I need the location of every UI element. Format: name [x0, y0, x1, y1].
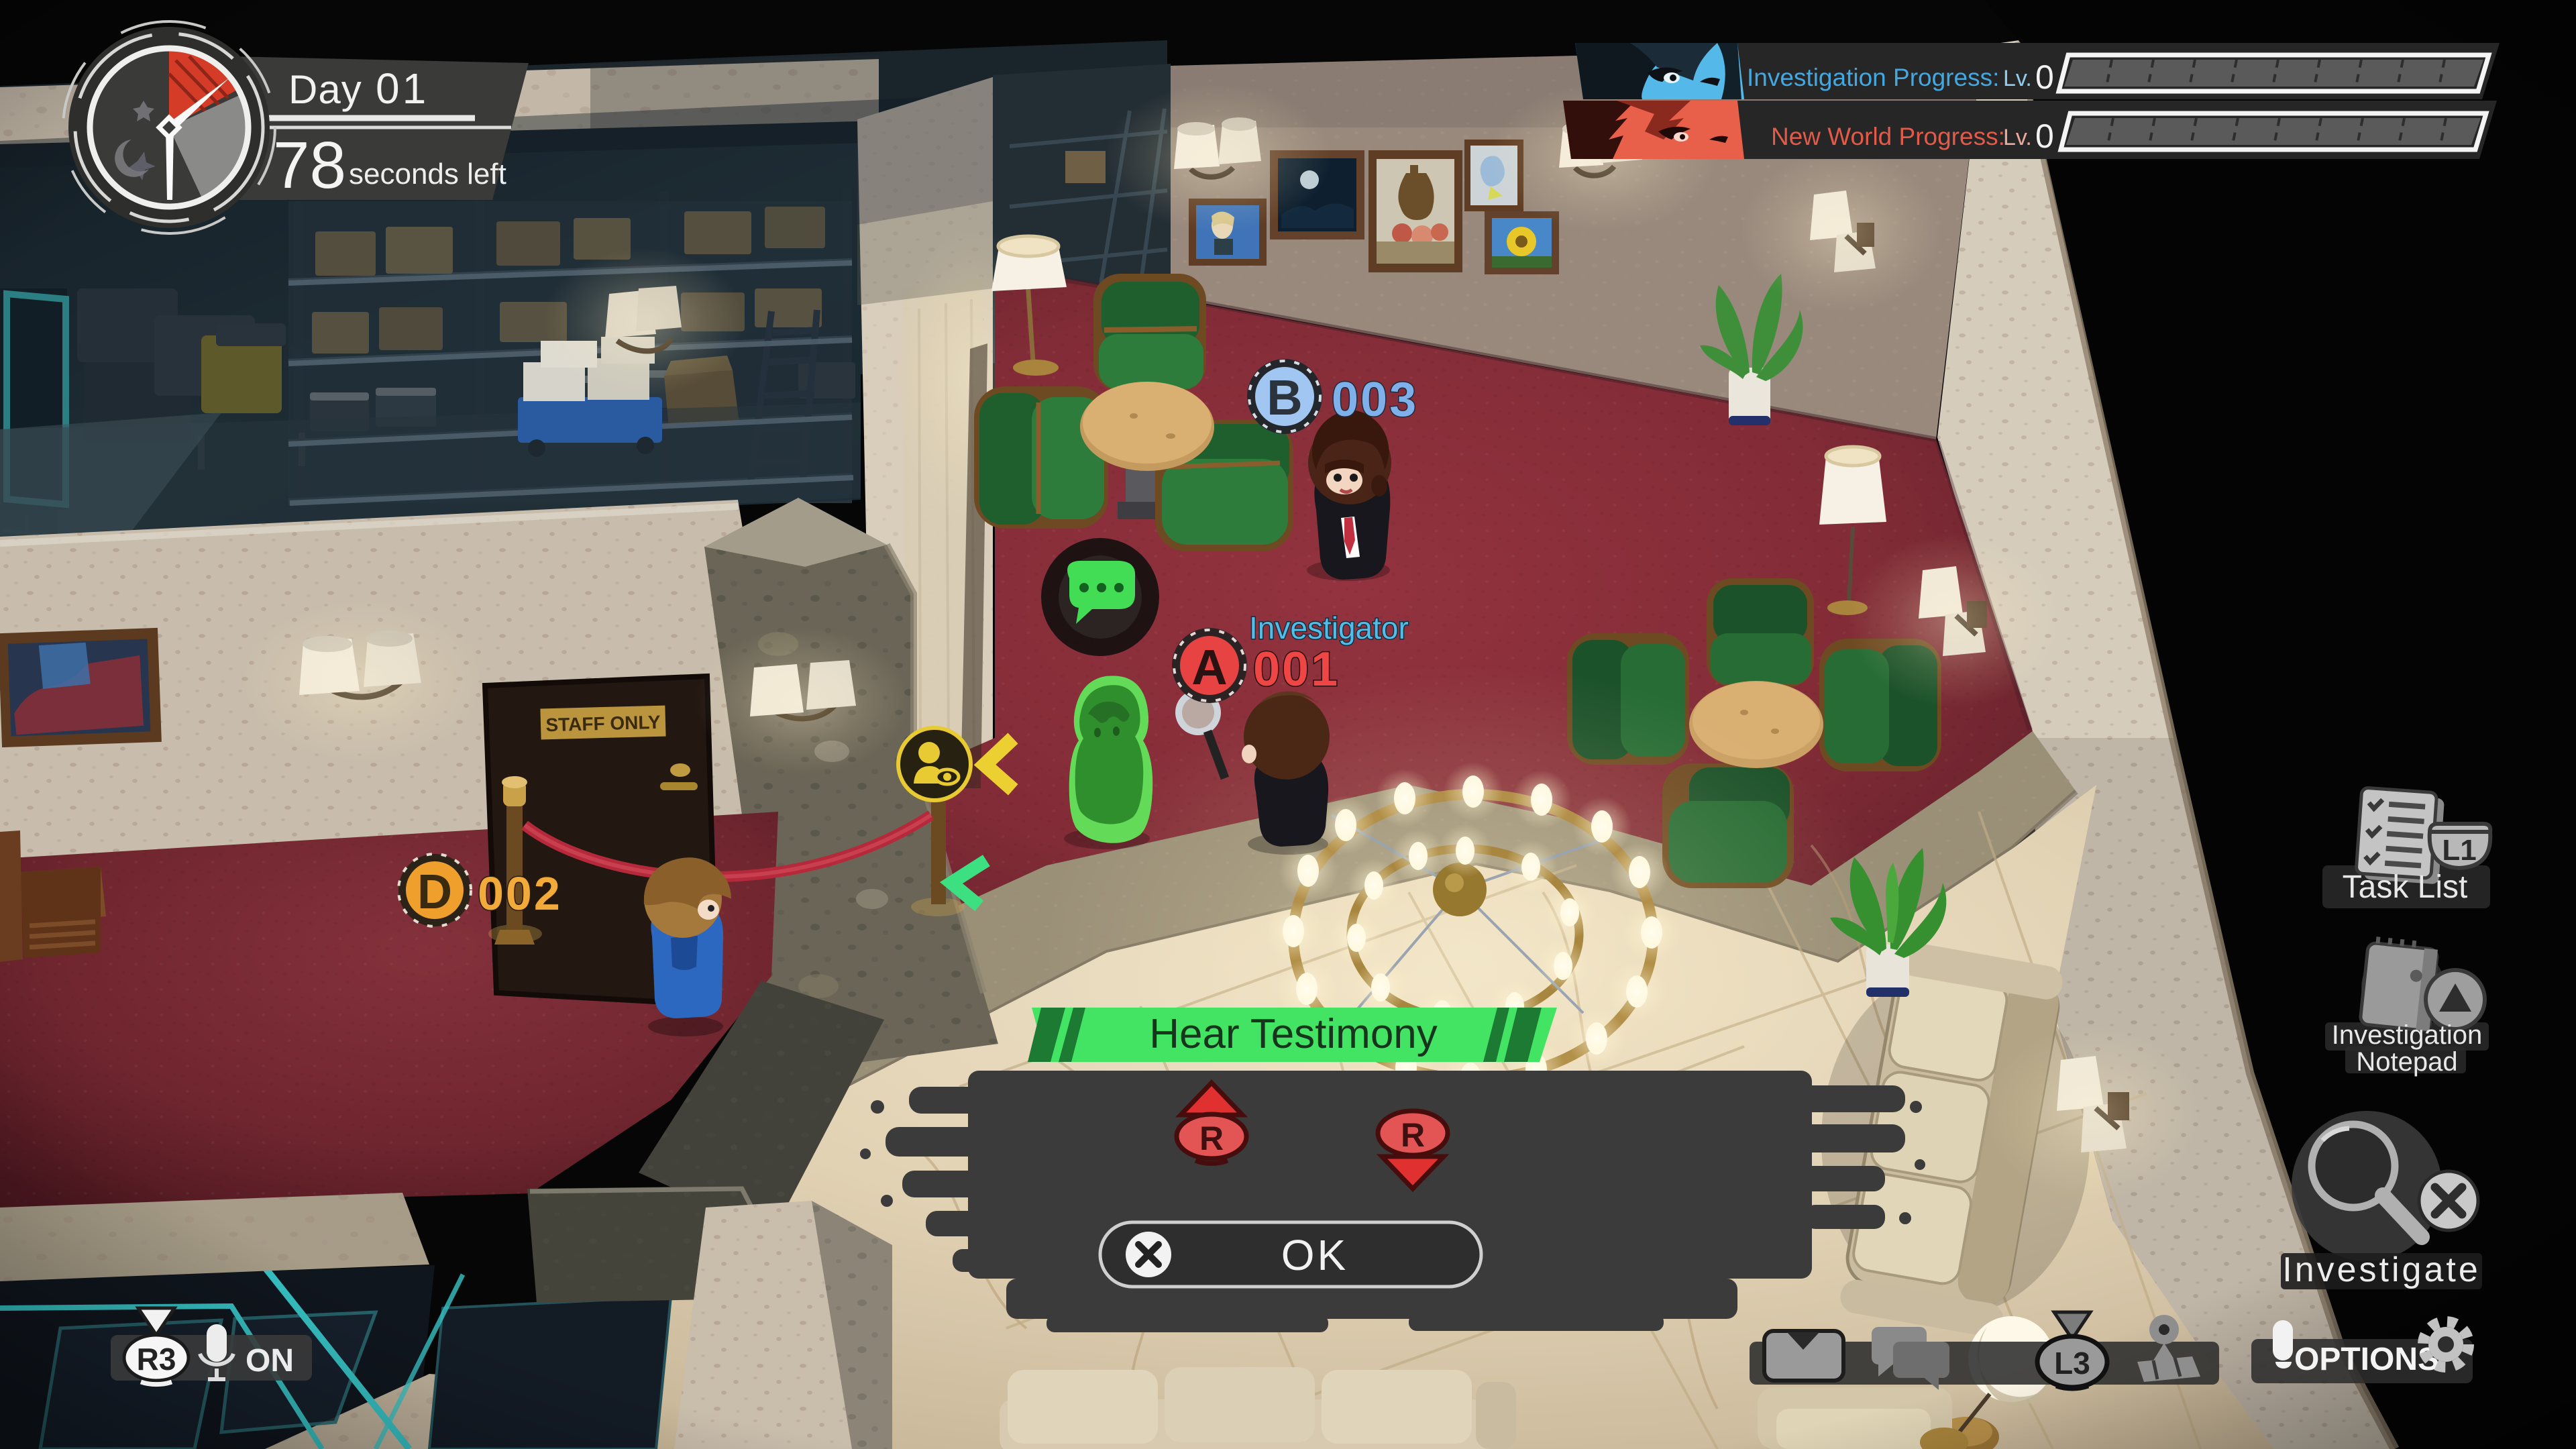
svg-text:ON: ON: [246, 1343, 294, 1379]
svg-text:OPTIONS: OPTIONS: [2294, 1342, 2439, 1377]
svg-text:Investigation Progress:: Investigation Progress:: [1747, 64, 1999, 91]
svg-text:L3: L3: [2054, 1346, 2090, 1381]
svg-text:Investigation: Investigation: [2332, 1020, 2483, 1050]
svg-text:0: 0: [2035, 58, 2054, 96]
svg-text:001: 001: [1253, 643, 1340, 696]
svg-text:Hear Testimony: Hear Testimony: [1149, 1011, 1438, 1057]
svg-text:A: A: [1191, 639, 1227, 695]
svg-text:01: 01: [376, 64, 429, 113]
svg-text:Notepad: Notepad: [2356, 1047, 2457, 1077]
svg-text:R: R: [1401, 1116, 1425, 1154]
svg-text:OK: OK: [1281, 1231, 1348, 1279]
svg-text:002: 002: [478, 867, 562, 920]
svg-text:Investigator: Investigator: [1249, 610, 1409, 645]
svg-text:R3: R3: [137, 1342, 176, 1377]
svg-text:003: 003: [1332, 373, 1418, 427]
svg-text:D: D: [417, 865, 452, 919]
svg-text:Lv.: Lv.: [2003, 66, 2032, 91]
svg-text:Investigate: Investigate: [2282, 1250, 2481, 1289]
svg-text:Task List: Task List: [2343, 869, 2468, 905]
svg-text:New World Progress:: New World Progress:: [1771, 123, 2005, 150]
svg-text:B: B: [1267, 370, 1302, 425]
svg-text:L1: L1: [2442, 834, 2476, 867]
svg-text:Lv.: Lv.: [2003, 125, 2032, 150]
svg-text:Day: Day: [288, 67, 362, 112]
svg-text:seconds left: seconds left: [349, 158, 506, 191]
svg-text:0: 0: [2035, 117, 2054, 155]
svg-text:R: R: [1199, 1120, 1224, 1157]
svg-text:78: 78: [273, 128, 346, 202]
